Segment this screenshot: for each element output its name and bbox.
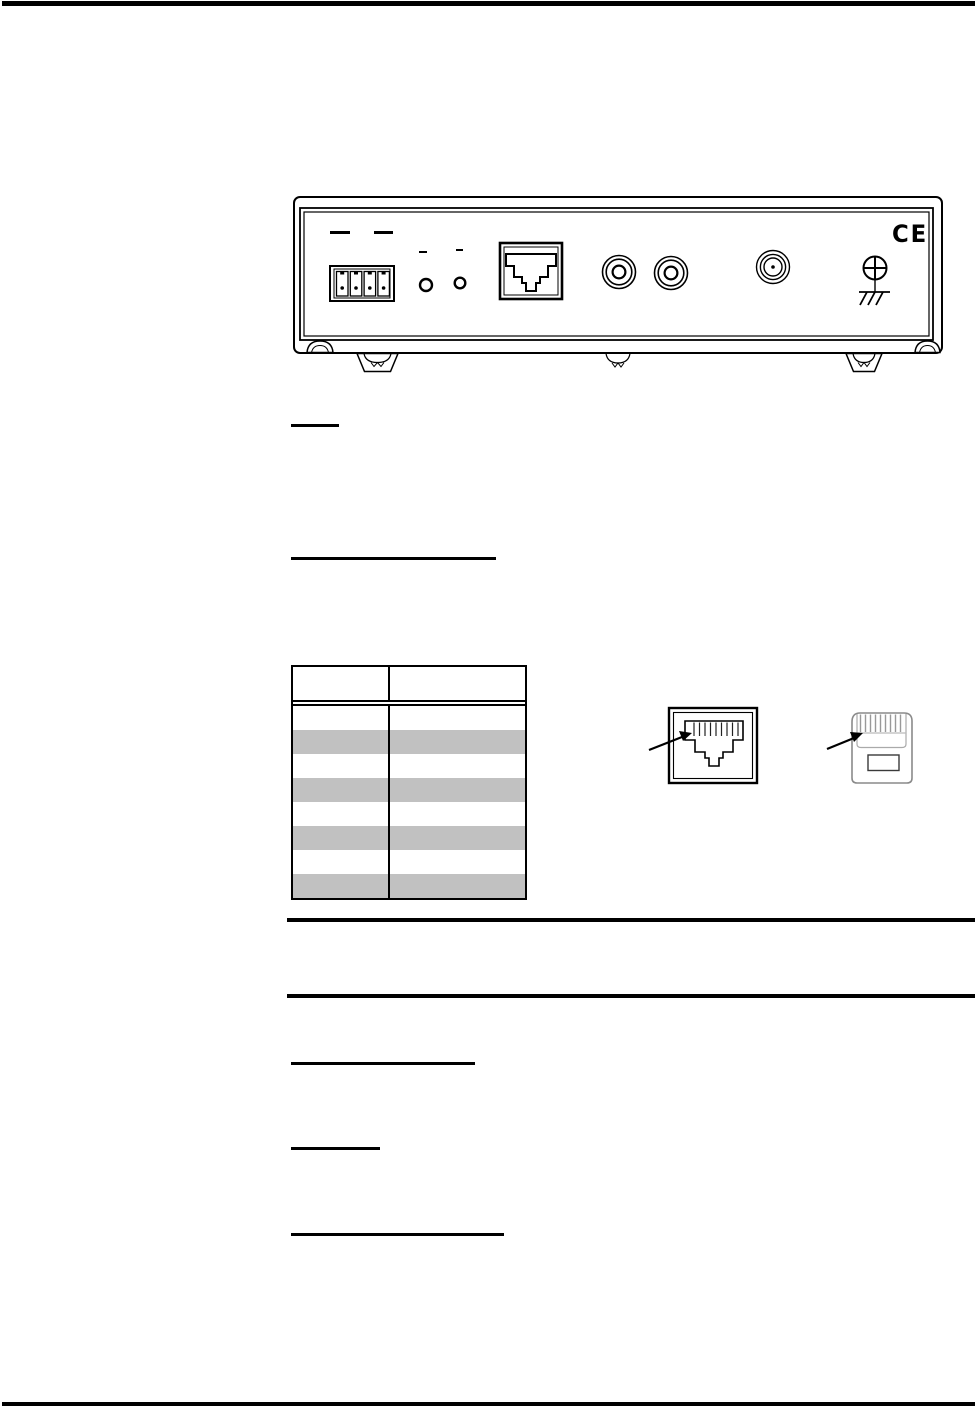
table-header-cell [390, 667, 525, 700]
table-cell [293, 826, 390, 850]
led-dash-1 [419, 251, 427, 253]
heading-underline-3 [291, 1062, 475, 1065]
led-dash-2 [456, 249, 463, 251]
table-cell [293, 778, 390, 802]
ground-screw [864, 257, 887, 280]
table-row [293, 778, 525, 802]
table-cell [293, 706, 390, 730]
note-band-bottom-rule [287, 994, 975, 998]
plug-latch-window [868, 755, 899, 771]
rj45-port [500, 243, 562, 299]
table-cell [293, 850, 390, 874]
page-top-rule [2, 1, 975, 6]
heading-underline-5 [291, 1233, 504, 1236]
rj45-jack-diagram [649, 708, 757, 783]
table-cell [390, 850, 525, 874]
table-row [293, 706, 525, 730]
rj45-connector-figures [620, 690, 932, 805]
table-cell [390, 826, 525, 850]
page: CE [0, 0, 978, 1408]
table-row [293, 730, 525, 754]
heading-underline-4 [291, 1147, 380, 1150]
table-row [293, 874, 525, 898]
table-cell [390, 874, 525, 898]
terminal-polarity-dash-1 [330, 231, 350, 234]
table-cell [293, 730, 390, 754]
note-band-top-rule [287, 918, 975, 922]
chassis-outline [294, 197, 942, 353]
pinout-table-header-row [293, 667, 525, 702]
table-cell [390, 706, 525, 730]
rear-panel-figure [288, 192, 948, 377]
heading-underline-2 [291, 557, 496, 560]
table-row [293, 754, 525, 778]
table-row [293, 850, 525, 874]
table-cell [293, 874, 390, 898]
rj45-plug-diagram [827, 713, 912, 783]
table-cell [390, 730, 525, 754]
heading-underline-1 [291, 424, 339, 427]
pinout-table-body [293, 704, 525, 898]
pinout-table [291, 665, 527, 900]
table-cell [390, 754, 525, 778]
page-bottom-rule [2, 1402, 975, 1406]
table-cell [293, 802, 390, 826]
terminal-polarity-dash-2 [374, 231, 393, 234]
table-cell [390, 802, 525, 826]
table-header-cell [293, 667, 390, 700]
table-row [293, 802, 525, 826]
table-row [293, 826, 525, 850]
table-cell [293, 754, 390, 778]
table-cell [390, 778, 525, 802]
ce-mark: CE [892, 220, 928, 248]
